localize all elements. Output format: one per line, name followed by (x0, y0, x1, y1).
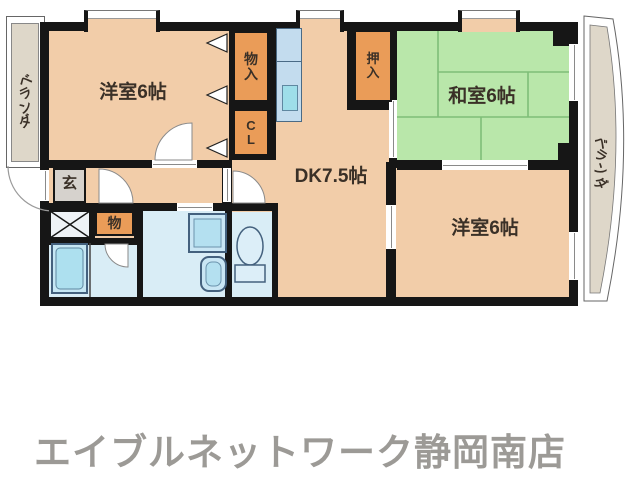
washbasin (201, 257, 226, 291)
label-oshiire: 押入 (354, 36, 392, 96)
label-storage-hall: 物 (95, 216, 134, 231)
washing-machine (189, 214, 226, 252)
shoe-cabinet-x-box (50, 211, 90, 238)
label-japanese-room: 和室6帖 (432, 87, 532, 107)
label-dk: DK7.5帖 (281, 167, 381, 187)
floor-plan-page: 洋室6帖 DK7.5帖 和室6帖 洋室6帖 玄 物 物入 CL 押入 ベランダ … (0, 0, 640, 480)
label-balcony-right: ベランダ (589, 126, 613, 200)
label-storage-top: 物入 (233, 36, 269, 97)
entrance-swing-arc (8, 166, 53, 211)
label-entrance: 玄 (53, 176, 86, 192)
store-name: エイブルネットワーク静岡南店 (34, 422, 566, 476)
label-western2: 洋室6帖 (435, 219, 535, 239)
plan-overlay (0, 0, 640, 480)
toilet (235, 227, 265, 282)
closet-door-triangles (207, 34, 227, 157)
label-western1: 洋室6帖 (68, 83, 198, 103)
bathtub (52, 243, 90, 297)
label-balcony-left: ベランダ (14, 60, 38, 142)
label-closet-cl: CL (233, 112, 269, 153)
